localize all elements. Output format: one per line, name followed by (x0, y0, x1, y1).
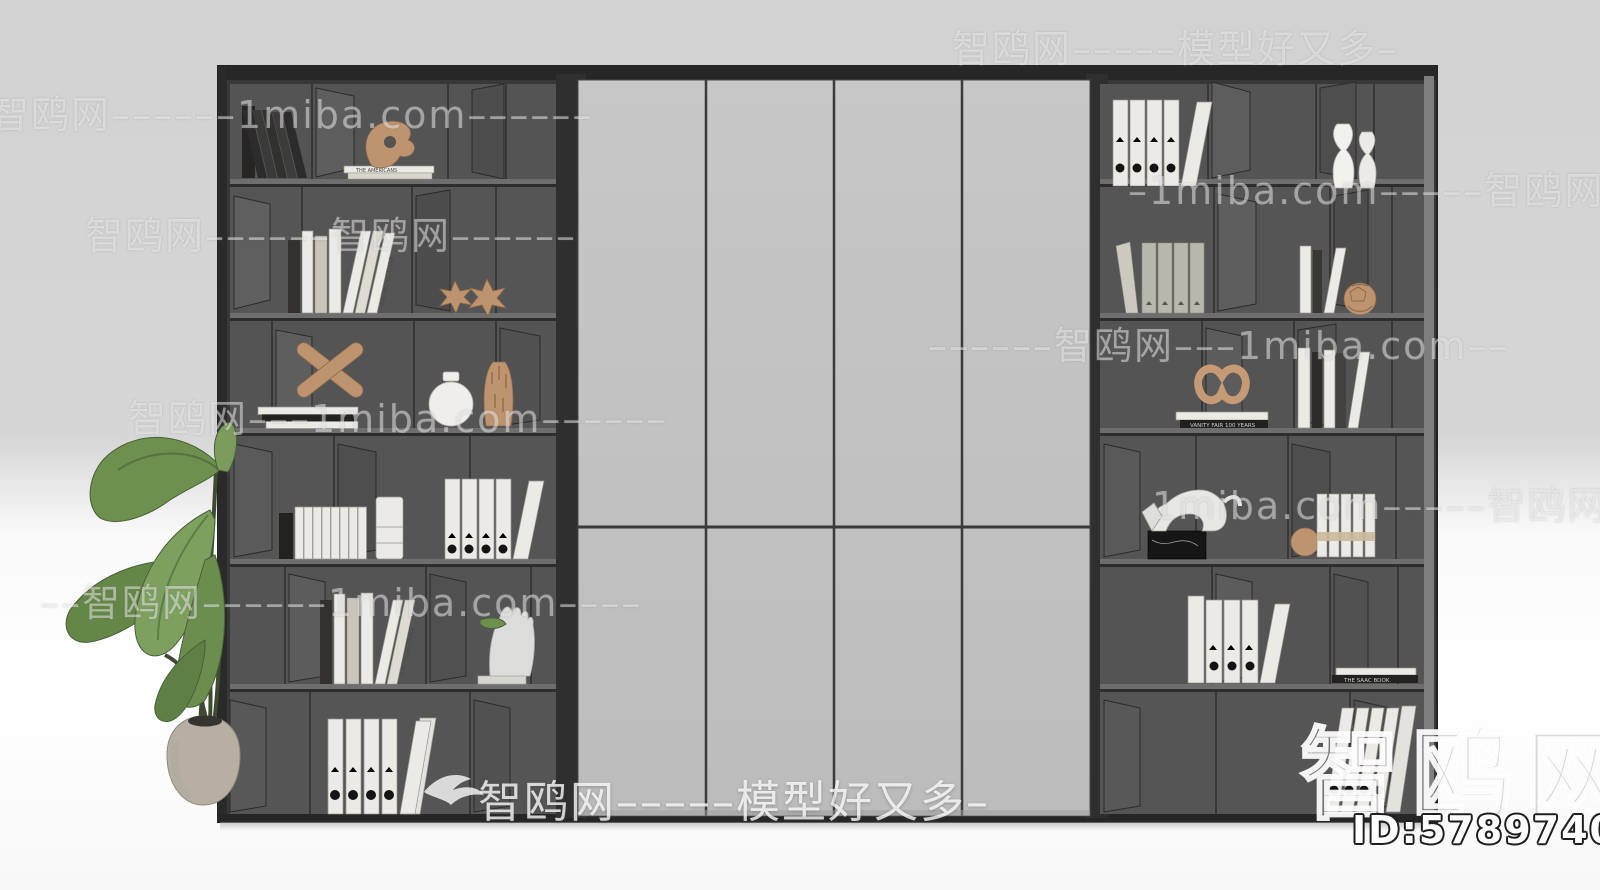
standing-books-row5: ARCHITECTURE (320, 593, 416, 684)
bookcase-cabinet: THE AMERICANS ARCHITECTURE (218, 66, 1437, 831)
center-cabinet-doors (556, 74, 1108, 818)
right-shelf-row-5 (1100, 567, 1424, 684)
model-id-badge: ID:578974014 (1352, 808, 1600, 852)
storage-canister (376, 497, 403, 559)
geodesic-sphere-tan (1344, 283, 1376, 315)
white-book-row (279, 507, 367, 559)
svg-text:VANITY FAIR 100 YEARS: VANITY FAIR 100 YEARS (1190, 423, 1256, 429)
left-shelf-row-2 (230, 187, 556, 313)
scene-render: THE AMERICANS ARCHITECTURE (0, 0, 1600, 890)
right-shelf-unit: VANITY FAIR 100 YEARS (1100, 82, 1424, 814)
carved-vase-tan (484, 362, 513, 426)
binder-books-gray (1116, 242, 1204, 313)
thin-book-stack-right: THE SAAC BOOK (1332, 668, 1418, 684)
standing-books-cluster-right (1298, 348, 1370, 428)
product-render-image: THE AMERICANS ARCHITECTURE (0, 0, 1600, 890)
left-shelf-unit: THE AMERICANS ARCHITECTURE (230, 84, 556, 814)
ring-binders-row5-right (1188, 596, 1290, 683)
svg-text:THE SAAC BOOK: THE SAAC BOOK (1343, 678, 1390, 684)
plant-pot (167, 716, 240, 806)
